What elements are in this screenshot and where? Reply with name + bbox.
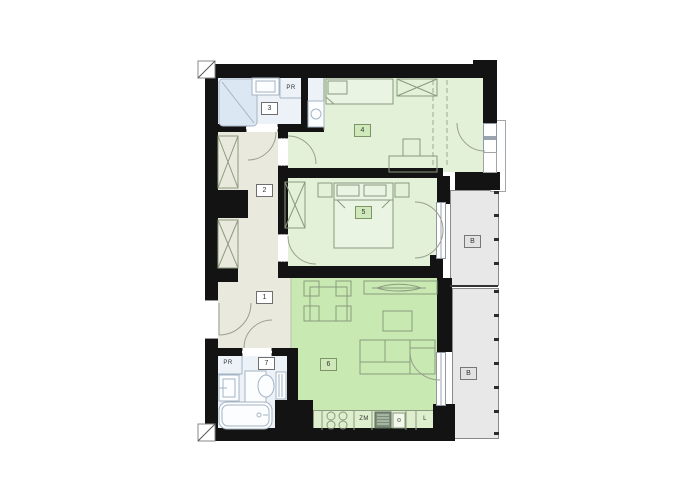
room-label-bathroom-upper: 3 — [261, 102, 278, 115]
room-label-bathroom-lower-text: 7 — [265, 360, 269, 367]
room-label-living-text: 6 — [327, 361, 331, 368]
label-dishwasher: ZM — [356, 416, 372, 422]
wall-bath-upper-partition — [301, 78, 308, 130]
room-label-bathroom-lower: 7 — [258, 357, 275, 370]
door-gap-bedroom-small — [278, 234, 288, 262]
balcony-lower-floor — [452, 288, 499, 439]
room-label-hall-lower: 1 — [256, 291, 273, 304]
wall-bath-lower-east — [287, 348, 298, 404]
floor-plan: 1 2 3 4 5 6 7 B B PR PR ZM L — [0, 0, 700, 500]
wall-room5-ne — [437, 176, 450, 204]
bedroom-large-floor-ext — [288, 130, 324, 172]
wall-room4-room5 — [283, 168, 443, 178]
wall-top — [205, 64, 497, 78]
wall-room5-room6 — [280, 266, 443, 278]
window-sill-bedroom-large — [483, 152, 497, 173]
door-gap-bathroom-lower — [242, 348, 272, 356]
wall-room6-se — [433, 404, 455, 441]
bedroom-large-floor — [324, 78, 483, 172]
room-label-balcony-upper-text: B — [470, 238, 475, 245]
label-fridge: L — [419, 416, 431, 422]
door-gap-bedroom-large — [278, 138, 288, 166]
wall-bottom — [205, 428, 455, 441]
room-label-bedroom-large: 4 — [354, 124, 371, 137]
label-wardrobe-lower: PR — [219, 360, 237, 366]
room-label-hall-lower-text: 1 — [263, 294, 267, 301]
room-label-hall-upper-text: 2 — [263, 187, 267, 194]
balcony-window-living — [436, 352, 446, 406]
balcony-door-bedroom-large — [483, 123, 497, 153]
balcony-window-bedroom-small — [436, 202, 446, 259]
room-label-bathroom-upper-text: 3 — [268, 105, 272, 112]
entrance-door-gap — [205, 300, 218, 339]
hall-lower-floor — [218, 278, 291, 348]
wall-hall-niche-lower — [218, 268, 238, 282]
room-label-living: 6 — [320, 358, 337, 371]
room-label-balcony-upper: B — [464, 235, 481, 248]
room-label-bedroom-small-text: 5 — [362, 209, 366, 216]
room-label-hall-upper: 2 — [256, 184, 273, 197]
label-wardrobe-upper: PR — [282, 85, 300, 91]
wall-left — [205, 64, 218, 441]
door-gap-bathroom-upper — [246, 124, 278, 132]
wall-room6-east — [437, 278, 452, 352]
wall-room4-east — [483, 64, 497, 123]
wall-room4-se-chunk — [455, 172, 500, 190]
wall-bath-lower-se-chunk — [275, 400, 313, 432]
wall-hall-niche-upper — [218, 190, 248, 218]
room-label-balcony-lower-text: B — [466, 370, 471, 377]
room-label-bedroom-large-text: 4 — [361, 127, 365, 134]
room-label-balcony-lower: B — [460, 367, 477, 380]
room-label-bedroom-small: 5 — [355, 206, 372, 219]
bedroom-small-floor — [283, 178, 437, 266]
